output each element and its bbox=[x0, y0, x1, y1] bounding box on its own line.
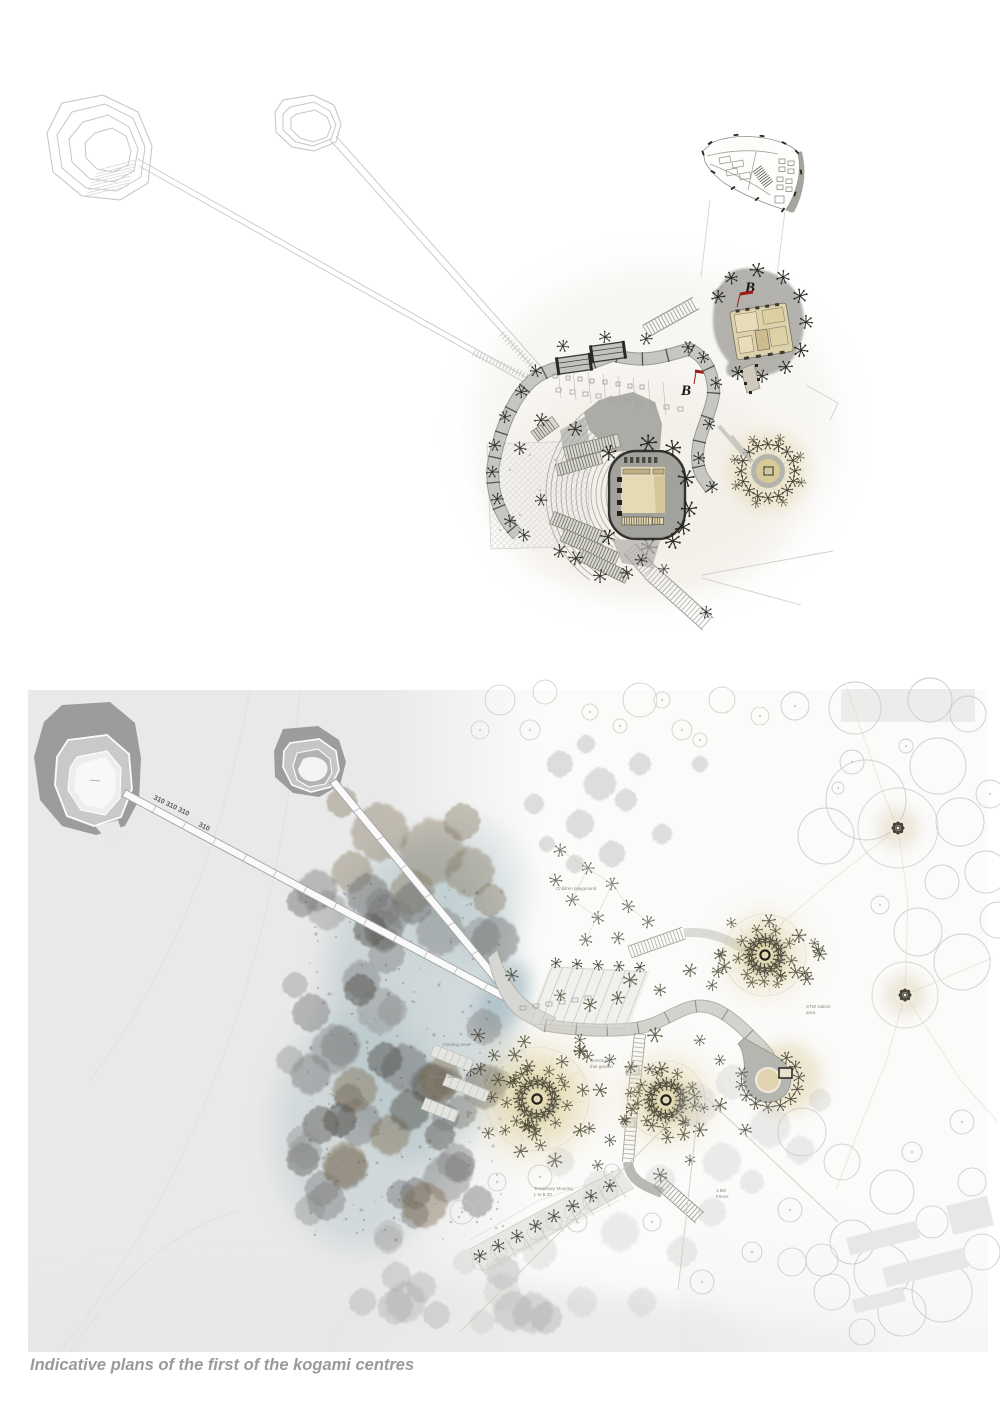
svg-text:Floating walking: Floating walking bbox=[430, 1074, 463, 1079]
svg-text:B: B bbox=[680, 383, 691, 399]
svg-text:Floating area: Floating area bbox=[443, 1042, 470, 1047]
svg-text:L to B 20: L to B 20 bbox=[534, 1192, 552, 1197]
svg-text:Children playground: Children playground bbox=[556, 886, 597, 891]
svg-text:Indicative plans of the first: Indicative plans of the first of the kog… bbox=[30, 1356, 414, 1374]
svg-text:Temporary Mooring: Temporary Mooring bbox=[534, 1186, 573, 1191]
svg-text:area: area bbox=[806, 1010, 816, 1015]
svg-text:fruit garden: fruit garden bbox=[590, 1064, 613, 1069]
svg-text:Fence: Fence bbox=[716, 1194, 729, 1199]
svg-text:Community: Community bbox=[590, 1058, 614, 1063]
svg-text:STW station: STW station bbox=[806, 1004, 831, 1009]
svg-text:1.5M: 1.5M bbox=[716, 1188, 726, 1193]
